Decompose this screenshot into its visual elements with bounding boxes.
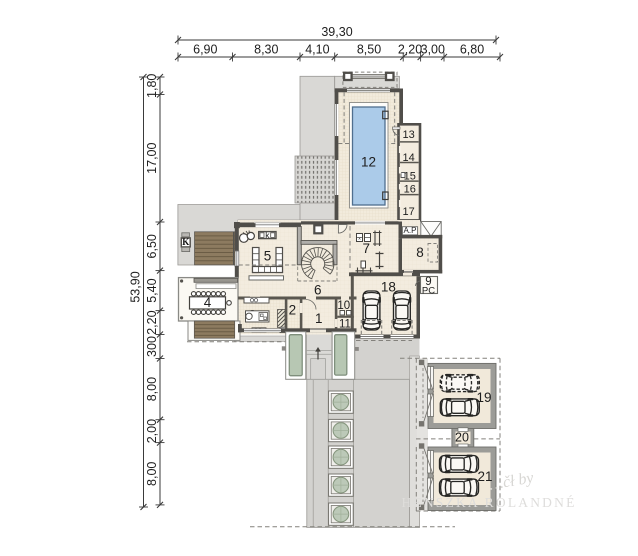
svg-text:17: 17 [402,206,414,218]
svg-text:53,90: 53,90 [129,271,143,302]
svg-text:14: 14 [402,152,414,164]
svg-text:15: 15 [404,171,416,183]
svg-text:16: 16 [404,184,416,196]
svg-text:6,50: 6,50 [145,234,159,258]
svg-text:8,00: 8,00 [145,377,159,401]
svg-text:8,30: 8,30 [254,43,278,57]
svg-text:1,80: 1,80 [145,74,159,98]
svg-text:2,20: 2,20 [398,43,422,57]
svg-text:4: 4 [204,295,212,310]
svg-text:18: 18 [381,280,396,295]
svg-text:8: 8 [416,245,424,260]
svg-text:17,00: 17,00 [145,143,159,174]
svg-text:7: 7 [362,241,370,256]
svg-text:13: 13 [402,129,414,141]
svg-text:20: 20 [455,431,469,445]
svg-text:19: 19 [476,390,491,405]
svg-text:✕: ✕ [358,236,361,241]
svg-text:8,50: 8,50 [357,43,381,57]
svg-text:k: k [265,230,270,240]
svg-text:HENSZKA ROLANDNÉ: HENSZKA ROLANDNÉ [401,495,576,510]
svg-text:2,20: 2,20 [145,310,159,334]
svg-text:6,80: 6,80 [460,43,484,57]
svg-text:3,00: 3,00 [421,43,445,57]
svg-text:PC: PC [422,286,435,297]
svg-text:12: 12 [361,155,376,170]
svg-text:A.P: A.P [404,226,417,235]
svg-text:2,00: 2,00 [145,419,159,443]
svg-text:39,30: 39,30 [321,25,352,39]
svg-text:6,90: 6,90 [193,43,217,57]
svg-text:2: 2 [289,303,297,318]
svg-text:8,00: 8,00 [145,462,159,486]
svg-text:5,40: 5,40 [145,278,159,302]
svg-text:6: 6 [314,283,322,298]
svg-text:K: K [182,237,189,247]
svg-text:300: 300 [145,336,159,357]
svg-text:1: 1 [315,311,323,326]
svg-text:4,10: 4,10 [305,43,329,57]
svg-text:10: 10 [337,300,350,312]
svg-text:5: 5 [264,249,272,264]
